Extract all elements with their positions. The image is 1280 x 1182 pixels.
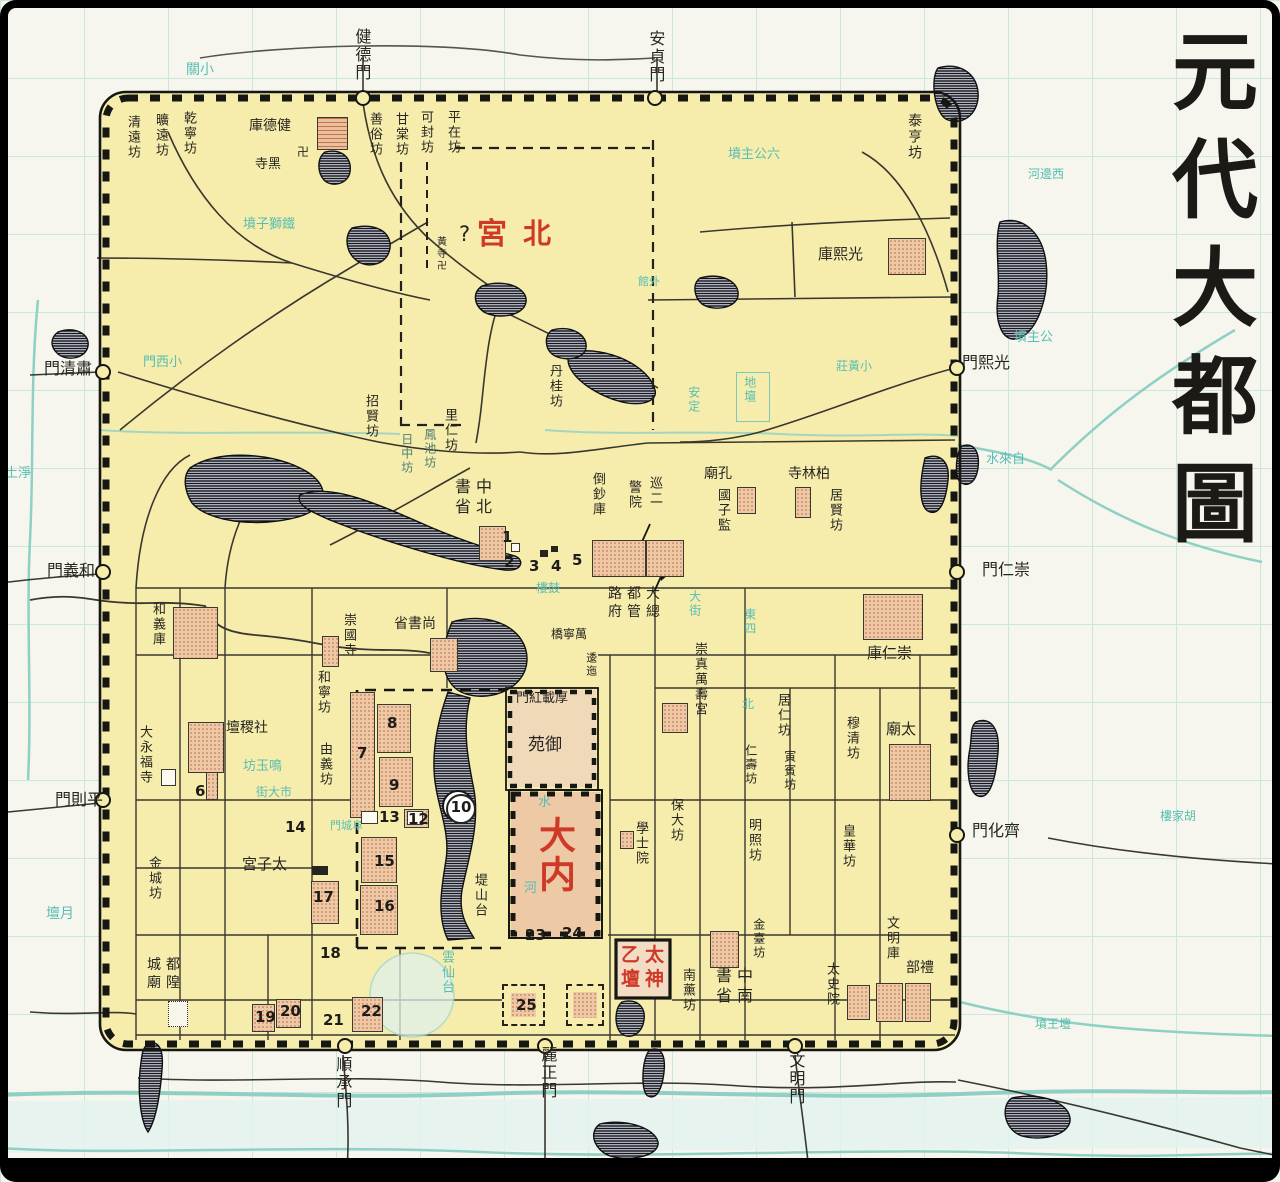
label-teal-xiaoguan: 關小 bbox=[186, 62, 214, 78]
label-mark-question: ? bbox=[459, 222, 470, 246]
block-guangxiku bbox=[888, 238, 926, 275]
label-ward-yinbin: 寅賓坊 bbox=[782, 750, 796, 792]
label-red-taiyi: 乙太 壇神 bbox=[621, 944, 669, 992]
block-libu-2 bbox=[905, 983, 931, 1022]
label-gate-jiande: 健德門 bbox=[352, 28, 370, 82]
label-bld-chenghuangmiao: 城都 廟隍 bbox=[147, 957, 185, 992]
label-ward-baoda: 保大坊 bbox=[667, 798, 682, 843]
block-kongmiao bbox=[737, 487, 756, 514]
site-number-14: 14 bbox=[285, 818, 306, 836]
label-gate-pingze: 門則平 bbox=[55, 791, 103, 809]
label-ward-juxian: 居賢坊 bbox=[826, 488, 841, 533]
label-bld-xunjing-col2: 警院 bbox=[625, 480, 640, 510]
label-teal-xiaoximen: 門西小 bbox=[143, 356, 182, 371]
label-bld-huangsi: 黃寺卍 bbox=[434, 236, 446, 272]
label-gate-suqing: 門清肅 bbox=[44, 360, 92, 378]
site-number-25: 25 bbox=[516, 996, 537, 1014]
label-teal-yunxiantai: 雲仙台 bbox=[438, 950, 453, 995]
block-num3-box bbox=[540, 550, 548, 557]
label-ward-mingzhao: 明照坊 bbox=[745, 818, 760, 863]
block-palace-13-box bbox=[361, 811, 378, 824]
label-ward-zhaoxian: 招賢坊 bbox=[362, 394, 377, 439]
label-ward-gantang: 甘棠坊 bbox=[392, 112, 407, 157]
label-ward-fengchi: 鳳池坊 bbox=[422, 428, 436, 470]
site-number-18: 18 bbox=[320, 944, 341, 962]
site-number-5: 5 bbox=[572, 551, 582, 569]
label-teal-dajie: 大街 bbox=[687, 590, 701, 618]
label-bld-taishiyuan: 太史院 bbox=[823, 962, 838, 1007]
label-ward-renshou: 仁壽坊 bbox=[743, 744, 757, 786]
block-shejitan bbox=[188, 722, 224, 773]
label-bld-shejitan: 壇稷社 bbox=[226, 720, 268, 736]
label-teal-dongsi: 東四 bbox=[742, 608, 756, 636]
label-bld-zhongshunansheng: 書中 省南 bbox=[716, 966, 758, 1006]
site-number-21: 21 bbox=[323, 1011, 344, 1029]
block-chenghuangmiao bbox=[168, 1001, 188, 1027]
block-site-25b-fill bbox=[573, 992, 597, 1018]
label-bld-heisi: 寺黑 bbox=[255, 158, 281, 173]
label-bld-jiandeku: 庫德健 bbox=[249, 118, 291, 134]
site-number-7: 7 bbox=[357, 744, 367, 762]
label-ward-qianning: 乾寧坊 bbox=[180, 111, 195, 156]
site-number-9: 9 bbox=[389, 776, 399, 794]
label-icon-swastika-1: 卍 bbox=[297, 146, 309, 160]
site-number-23: 23 bbox=[525, 926, 546, 944]
label-ward-taiheng: 泰亨坊 bbox=[906, 113, 922, 161]
block-chongrenku bbox=[863, 594, 923, 640]
label-bld-bailinsi: 寺林柏 bbox=[788, 466, 830, 482]
label-ward-huanghua: 皇華坊 bbox=[839, 824, 854, 869]
label-teal-tieshizifen: 墳子獅鐵 bbox=[243, 218, 295, 233]
label-teal-shui: 水 bbox=[538, 796, 551, 811]
yuan-dadu-map: 健德門安貞門門清肅門義和門則平門熙光門仁崇門化齊順承門麗正門文明門清遠坊曠遠坊乾… bbox=[0, 0, 1280, 1182]
block-xunjingyuan bbox=[646, 540, 684, 577]
label-bld-xunjing-col1: 巡二 bbox=[646, 476, 661, 506]
block-shangshusheng bbox=[430, 638, 458, 672]
label-ward-nanxun: 南薰坊 bbox=[679, 968, 694, 1013]
label-bld-zhongshubeisheng: 書中 省北 bbox=[455, 477, 497, 517]
label-teal-bei: 北 bbox=[742, 698, 754, 712]
labels-layer: 健德門安貞門門清肅門義和門則平門熙光門仁崇門化齊順承門麗正門文明門清遠坊曠遠坊乾… bbox=[0, 0, 1280, 1182]
site-number-17: 17 bbox=[313, 888, 334, 906]
label-ward-juren: 居仁坊 bbox=[774, 693, 789, 738]
label-ward-shansu: 善俗坊 bbox=[366, 112, 381, 157]
label-bld-chongrenku: 庫仁崇 bbox=[867, 645, 912, 662]
label-teal-fuchengmen: 門城阜 bbox=[330, 820, 363, 833]
label-bld-weiyi: 逶迤 bbox=[584, 652, 597, 678]
label-ward-dangui: 丹桂坊 bbox=[546, 364, 561, 409]
label-bld-kongmiao: 廟孔 bbox=[704, 466, 732, 482]
label-teal-liugongzhufen: 墳主公六 bbox=[728, 148, 780, 163]
block-wanshougong bbox=[662, 703, 688, 733]
map-title: 元代大都圖 bbox=[1160, 26, 1270, 566]
label-teal-hujialou: 樓家胡 bbox=[1160, 810, 1196, 824]
site-number-24: 24 bbox=[562, 924, 583, 942]
label-bld-yuyuan: 苑御 bbox=[528, 736, 562, 756]
label-bld-guangxiku: 庫熙光 bbox=[818, 246, 863, 263]
site-number-2: 2 bbox=[504, 553, 514, 571]
title-char-5: 圖 bbox=[1160, 458, 1270, 566]
label-teal-gongzhufen: 墳主公 bbox=[1014, 331, 1053, 346]
site-number-6: 6 bbox=[195, 782, 205, 800]
label-teal-yuetan: 壇月 bbox=[46, 906, 74, 922]
site-number-8: 8 bbox=[387, 714, 397, 732]
block-daochaoku bbox=[592, 540, 646, 577]
site-number-12: 12 bbox=[408, 810, 429, 828]
block-yongfusi-box bbox=[161, 769, 176, 786]
label-site-dishantai: 堤山台 bbox=[471, 873, 486, 918]
label-ward-pingzai: 平在坊 bbox=[444, 110, 459, 155]
label-bld-taimiao: 廟太 bbox=[886, 721, 916, 738]
block-num4-box bbox=[551, 546, 558, 552]
site-number-15: 15 bbox=[374, 852, 395, 870]
label-bld-wanningqiao: 橋寧萬 bbox=[551, 628, 587, 642]
label-bld-wenmingku: 文明庫 bbox=[883, 916, 898, 961]
label-bld-houzaihongmen: 門紅載厚 bbox=[516, 692, 568, 707]
label-gate-anzhen: 安貞門 bbox=[646, 30, 664, 84]
label-ward-rizhong: 日中坊 bbox=[399, 433, 413, 475]
label-gate-guangxi: 門熙光 bbox=[962, 354, 1010, 372]
site-number-20: 20 bbox=[280, 1002, 301, 1020]
label-ward-jintai: 金臺坊 bbox=[751, 918, 765, 960]
title-char-1: 元 bbox=[1160, 26, 1270, 134]
site-number-16: 16 bbox=[374, 897, 395, 915]
site-number-10: 10 bbox=[446, 794, 476, 824]
label-ward-jincheng: 金城坊 bbox=[145, 856, 160, 901]
title-char-4: 都 bbox=[1160, 350, 1270, 458]
label-bld-shangshusheng: 省書尚 bbox=[394, 616, 436, 632]
block-libu-1 bbox=[876, 983, 903, 1022]
label-bld-heyiku: 和義庫 bbox=[149, 602, 164, 647]
label-teal-jingtu: 土淨 bbox=[5, 467, 31, 482]
label-bld-xueshiyuan: 學士院 bbox=[632, 821, 647, 866]
label-gate-heyi: 門義和 bbox=[47, 562, 95, 580]
label-gate-qihua: 門化齊 bbox=[972, 822, 1020, 840]
site-number-1: 1 bbox=[502, 528, 512, 546]
label-gate-chongren: 門仁崇 bbox=[982, 561, 1030, 579]
label-teal-gulou: 樓鼓 bbox=[536, 582, 560, 596]
label-teal-mingyufang: 坊玉鳴 bbox=[243, 760, 282, 775]
site-number-13: 13 bbox=[379, 808, 400, 826]
label-bld-taizigong: 宮子太 bbox=[242, 856, 287, 873]
label-teal-he: 河 bbox=[524, 882, 537, 897]
label-ward-qingyuan: 清遠坊 bbox=[124, 115, 139, 160]
label-teal-ditan: 地壇 bbox=[742, 376, 756, 404]
label-bld-libu: 部禮 bbox=[906, 960, 934, 976]
label-bld-daochaoku: 倒鈔庫 bbox=[589, 472, 604, 517]
block-nansheng bbox=[710, 931, 739, 968]
label-teal-wangtanfen: 墳王壇 bbox=[1035, 1018, 1071, 1032]
label-bld-dadulu: 路都大 府管總 bbox=[608, 586, 665, 621]
block-chongguosi bbox=[322, 636, 339, 667]
label-gate-shuncheng: 順承門 bbox=[333, 1056, 351, 1110]
label-teal-waiguan: 館外 bbox=[638, 276, 660, 289]
title-char-2: 代 bbox=[1160, 134, 1270, 242]
label-red-bei: 北 bbox=[523, 218, 551, 250]
label-ward-kefeng: 可封坊 bbox=[417, 110, 432, 155]
label-ward-liren: 里仁坊 bbox=[441, 408, 456, 453]
label-teal-dashijie: 街大市 bbox=[256, 786, 292, 800]
label-bld-guozijian: 國子監 bbox=[714, 488, 729, 533]
label-bld-dayongfusi: 大永福寺 bbox=[136, 725, 151, 785]
label-ward-youyi: 由義坊 bbox=[316, 742, 331, 787]
block-shejitan-tail bbox=[206, 772, 218, 800]
block-bailinsi bbox=[795, 487, 811, 518]
block-taizigong-tick bbox=[312, 866, 328, 875]
label-teal-xibianhe: 河邊西 bbox=[1028, 168, 1064, 182]
label-ward-kuangyuan: 曠遠坊 bbox=[152, 113, 167, 158]
label-gate-wenming: 文明門 bbox=[786, 1052, 804, 1106]
label-ward-muqing: 穆清坊 bbox=[843, 716, 858, 761]
label-teal-zilaishui: 水來自 bbox=[986, 453, 1025, 468]
label-gate-lizheng: 麗正門 bbox=[538, 1046, 556, 1100]
site-number-22: 22 bbox=[361, 1002, 382, 1020]
site-number-4: 4 bbox=[551, 557, 561, 575]
label-ward-hening: 和寧坊 bbox=[314, 670, 329, 715]
site-number-3: 3 bbox=[529, 557, 539, 575]
block-taimiao bbox=[889, 744, 931, 801]
block-heyiku bbox=[173, 607, 218, 659]
title-char-3: 大 bbox=[1160, 242, 1270, 350]
label-teal-anding: 安定 bbox=[686, 386, 700, 414]
block-jiandeku bbox=[317, 117, 348, 150]
label-bld-chongguosi: 崇國寺 bbox=[340, 613, 355, 658]
label-teal-xiaohuangzhuang: 莊黃小 bbox=[836, 360, 872, 374]
block-taishiyuan bbox=[847, 985, 870, 1020]
site-number-19: 19 bbox=[255, 1008, 276, 1026]
label-bld-chongzhen: 崇真萬壽宮 bbox=[691, 642, 706, 717]
label-red-gong: 宮 bbox=[477, 218, 507, 253]
label-red-danei: 大内 bbox=[532, 816, 575, 894]
